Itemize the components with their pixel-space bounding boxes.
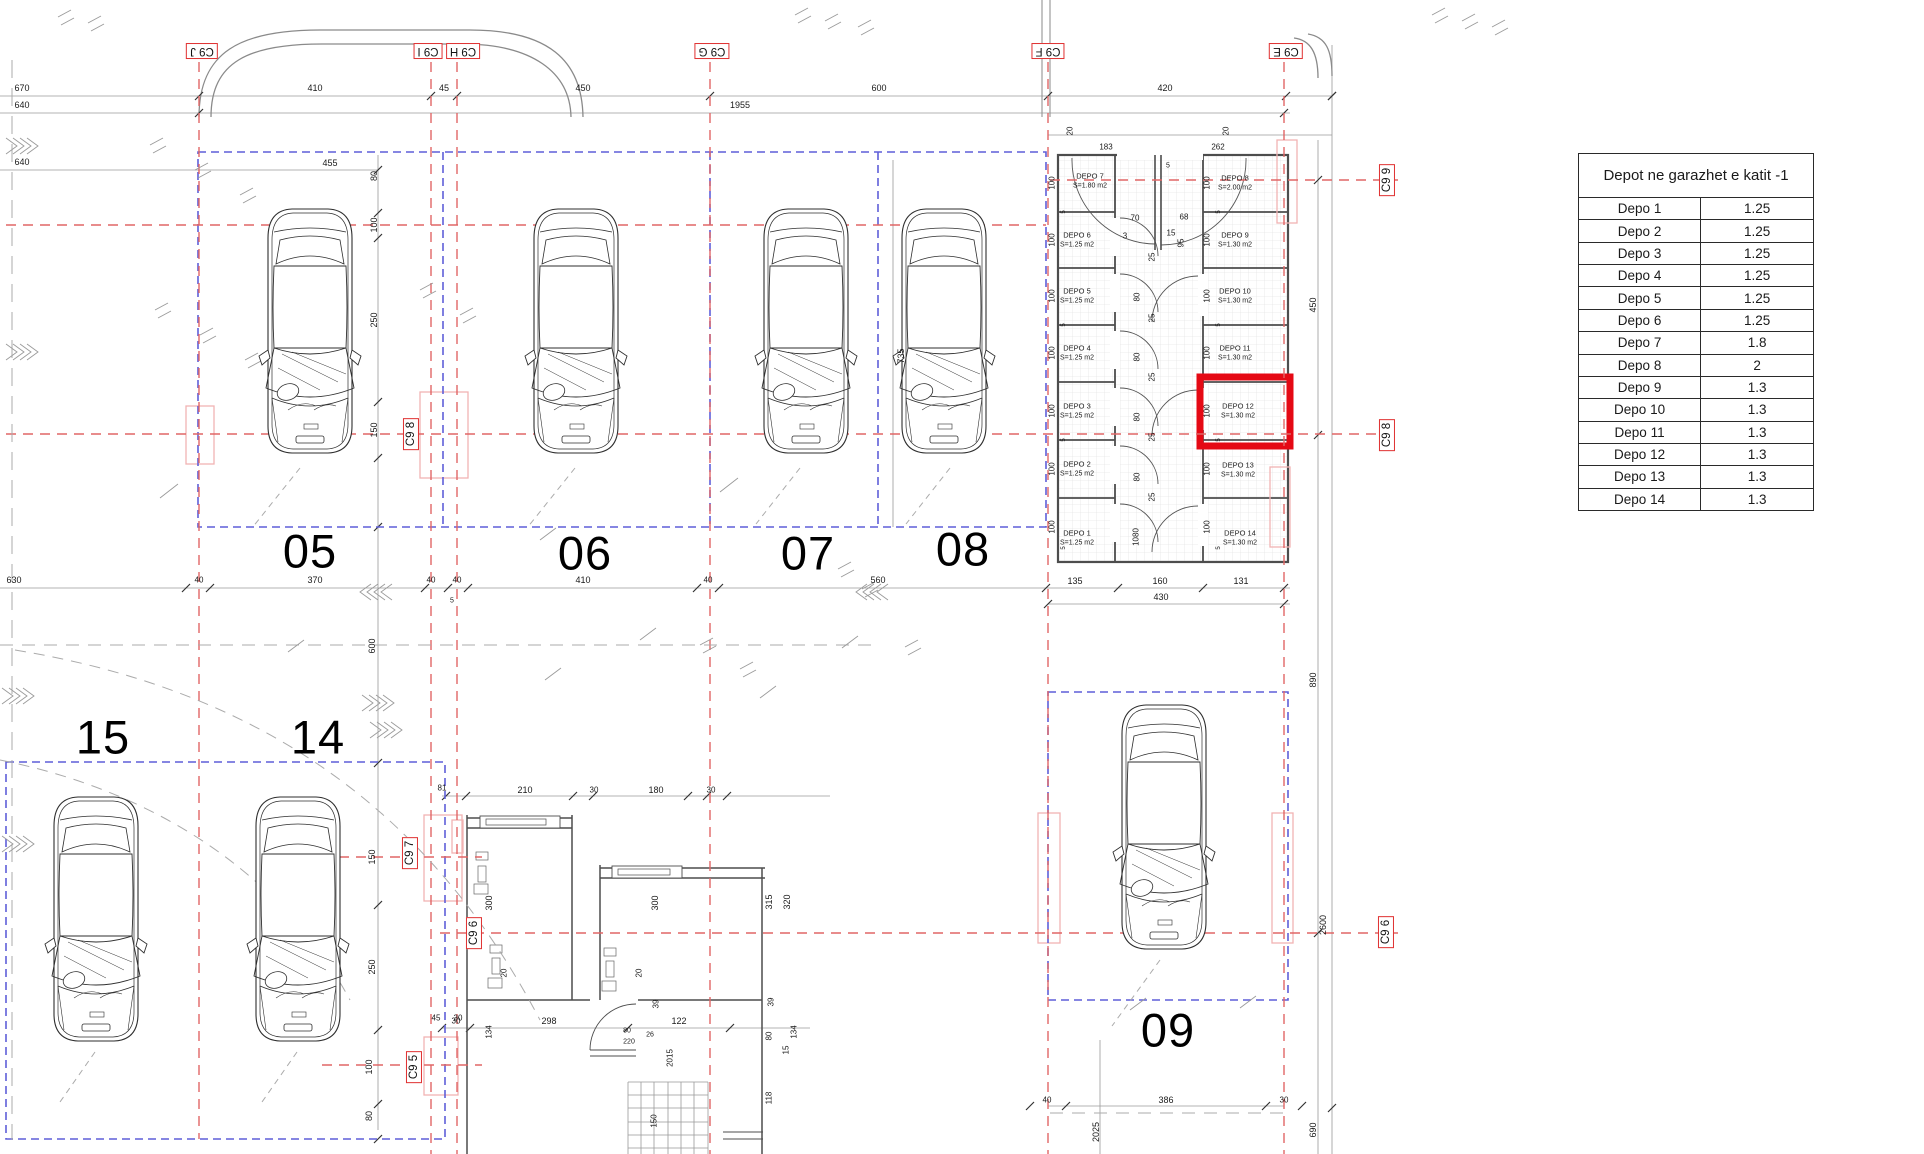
car-stall-08 [893, 209, 995, 453]
depot-block [1058, 150, 1290, 562]
road-curves [199, 0, 1332, 117]
depot-area-cell: 1.25 [1701, 243, 1813, 264]
depot-area-cell: 1.25 [1701, 220, 1813, 241]
depot-area-cell: 1.3 [1701, 422, 1813, 443]
table-row: Depo 5 1.25 [1579, 287, 1813, 309]
depot-name-cell: Depo 3 [1579, 243, 1701, 264]
depot-area-cell: 1.3 [1701, 444, 1813, 465]
depot-name-cell: Depo 4 [1579, 265, 1701, 286]
table-row: Depo 13 1.3 [1579, 466, 1813, 488]
table-title: Depot ne garazhet e katit -1 [1579, 154, 1813, 198]
depot-area-cell: 1.25 [1701, 287, 1813, 308]
depot-area-cell: 1.3 [1701, 377, 1813, 398]
depot-name-cell: Depo 1 [1579, 198, 1701, 219]
stairwell-rooms [467, 815, 765, 1154]
floor-plan-canvas: 6706406404104545060042019551832622020510… [0, 0, 1924, 1154]
depot-area-cell: 1.25 [1701, 265, 1813, 286]
cars [45, 209, 1215, 1041]
depot-name-cell: Depo 9 [1579, 377, 1701, 398]
car-stall-06 [525, 209, 627, 453]
depot-name-cell: Depo 2 [1579, 220, 1701, 241]
table-row: Depo 6 1.25 [1579, 310, 1813, 332]
table-row: Depo 2 1.25 [1579, 220, 1813, 242]
car-stall-15 [45, 797, 147, 1041]
table-row: Depo 3 1.25 [1579, 243, 1813, 265]
car-stall-07 [755, 209, 857, 453]
depot-name-cell: Depo 7 [1579, 332, 1701, 353]
depot-name-cell: Depo 10 [1579, 399, 1701, 420]
table-row: Depo 11 1.3 [1579, 422, 1813, 444]
car-stall-09 [1113, 705, 1215, 949]
depot-name-cell: Depo 11 [1579, 422, 1701, 443]
table-row: Depo 9 1.3 [1579, 377, 1813, 399]
table-row: Depo 1 1.25 [1579, 198, 1813, 220]
table-row: Depo 12 1.3 [1579, 444, 1813, 466]
table-row: Depo 14 1.3 [1579, 489, 1813, 510]
depot-name-cell: Depo 6 [1579, 310, 1701, 331]
table-row: Depo 7 1.8 [1579, 332, 1813, 354]
depot-area-cell: 1.25 [1701, 310, 1813, 331]
depot-name-cell: Depo 14 [1579, 489, 1701, 510]
depot-area-cell: 1.3 [1701, 399, 1813, 420]
depot-name-cell: Depo 13 [1579, 466, 1701, 487]
table-row: Depo 10 1.3 [1579, 399, 1813, 421]
depot-name-cell: Depo 12 [1579, 444, 1701, 465]
depot-area-cell: 2 [1701, 355, 1813, 376]
table-row: Depo 4 1.25 [1579, 265, 1813, 287]
depot-area-cell: 1.3 [1701, 489, 1813, 510]
table-rows: Depo 1 1.25 Depo 2 1.25 Depo 3 1.25 Depo… [1579, 198, 1813, 510]
depot-name-cell: Depo 8 [1579, 355, 1701, 376]
depot-area-cell: 1.25 [1701, 198, 1813, 219]
depot-area-cell: 1.8 [1701, 332, 1813, 353]
table-row: Depo 8 2 [1579, 355, 1813, 377]
car-stall-14 [247, 797, 349, 1041]
car-stall-05 [259, 209, 361, 453]
depot-name-cell: Depo 5 [1579, 287, 1701, 308]
depot-area-table: Depot ne garazhet e katit -1 Depo 1 1.25… [1578, 153, 1814, 511]
depot-area-cell: 1.3 [1701, 466, 1813, 487]
